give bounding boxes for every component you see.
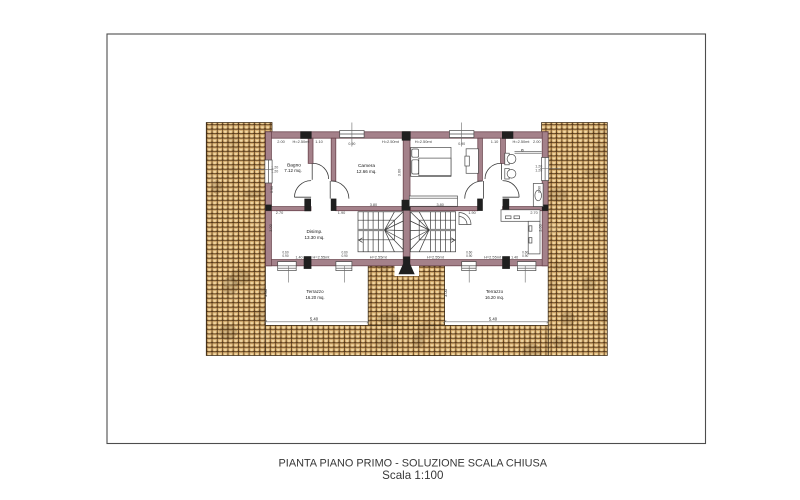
svg-text:1.90: 1.90 (468, 211, 475, 215)
svg-text:Terrazzo: Terrazzo (486, 289, 504, 294)
svg-text:Terrazzo: Terrazzo (306, 289, 324, 294)
svg-text:H=2.55mt: H=2.55mt (484, 255, 502, 260)
svg-text:0.90: 0.90 (270, 186, 274, 193)
svg-text:H=2.50mt: H=2.50mt (415, 139, 433, 144)
svg-text:H=2.55mt: H=2.55mt (370, 255, 388, 260)
svg-text:3.80: 3.80 (437, 203, 444, 207)
svg-text:16.20 mq.: 16.20 mq. (485, 295, 504, 300)
svg-text:2.00: 2.00 (277, 139, 285, 144)
svg-text:0.90: 0.90 (348, 142, 355, 146)
svg-text:1.20: 1.20 (535, 169, 542, 173)
svg-text:1.40: 1.40 (511, 256, 518, 260)
svg-text:0.90: 0.90 (537, 186, 541, 193)
svg-text:3.00: 3.00 (443, 288, 448, 297)
svg-text:2.00: 2.00 (533, 139, 541, 144)
svg-text:0.90: 0.90 (282, 254, 288, 258)
svg-text:16.20 mq.: 16.20 mq. (305, 295, 324, 300)
svg-text:7.12 mq.: 7.12 mq. (284, 168, 302, 173)
svg-text:1.10: 1.10 (315, 139, 323, 144)
svg-text:1.10: 1.10 (491, 139, 499, 144)
svg-text:H=2.50mt: H=2.50mt (293, 139, 311, 144)
svg-text:3.60: 3.60 (398, 169, 402, 176)
svg-text:5.40: 5.40 (489, 317, 498, 322)
svg-text:12.66 mq.: 12.66 mq. (356, 169, 376, 174)
svg-text:PIANTA PIANO PRIMO - SOLUZIONE: PIANTA PIANO PRIMO - SOLUZIONE SCALA CHI… (279, 458, 548, 470)
svg-text:3.00: 3.00 (539, 224, 543, 231)
svg-text:0.90: 0.90 (466, 254, 472, 258)
svg-text:1.20: 1.20 (271, 170, 278, 174)
svg-text:3.80: 3.80 (370, 203, 377, 207)
svg-text:Disimp.: Disimp. (307, 229, 323, 235)
svg-text:H=2.55mt: H=2.55mt (313, 255, 331, 260)
svg-text:5.40: 5.40 (310, 317, 319, 322)
svg-text:H=2.50mt: H=2.50mt (382, 139, 400, 144)
svg-text:1.90: 1.90 (338, 211, 345, 215)
svg-text:1.40: 1.40 (296, 256, 303, 260)
svg-text:0.90: 0.90 (341, 254, 347, 258)
svg-text:2.70: 2.70 (276, 211, 283, 215)
svg-text:0.90: 0.90 (522, 254, 528, 258)
svg-text:3.00: 3.00 (263, 288, 268, 297)
svg-text:H=2.55mt: H=2.55mt (427, 255, 445, 260)
svg-text:13.30 mq.: 13.30 mq. (304, 235, 324, 240)
svg-text:2.70: 2.70 (530, 211, 537, 215)
svg-text:H=2.50mt: H=2.50mt (513, 139, 531, 144)
svg-text:3.00: 3.00 (269, 224, 273, 231)
svg-text:0.90: 0.90 (458, 142, 465, 146)
svg-text:Scala 1:100: Scala 1:100 (382, 469, 443, 482)
